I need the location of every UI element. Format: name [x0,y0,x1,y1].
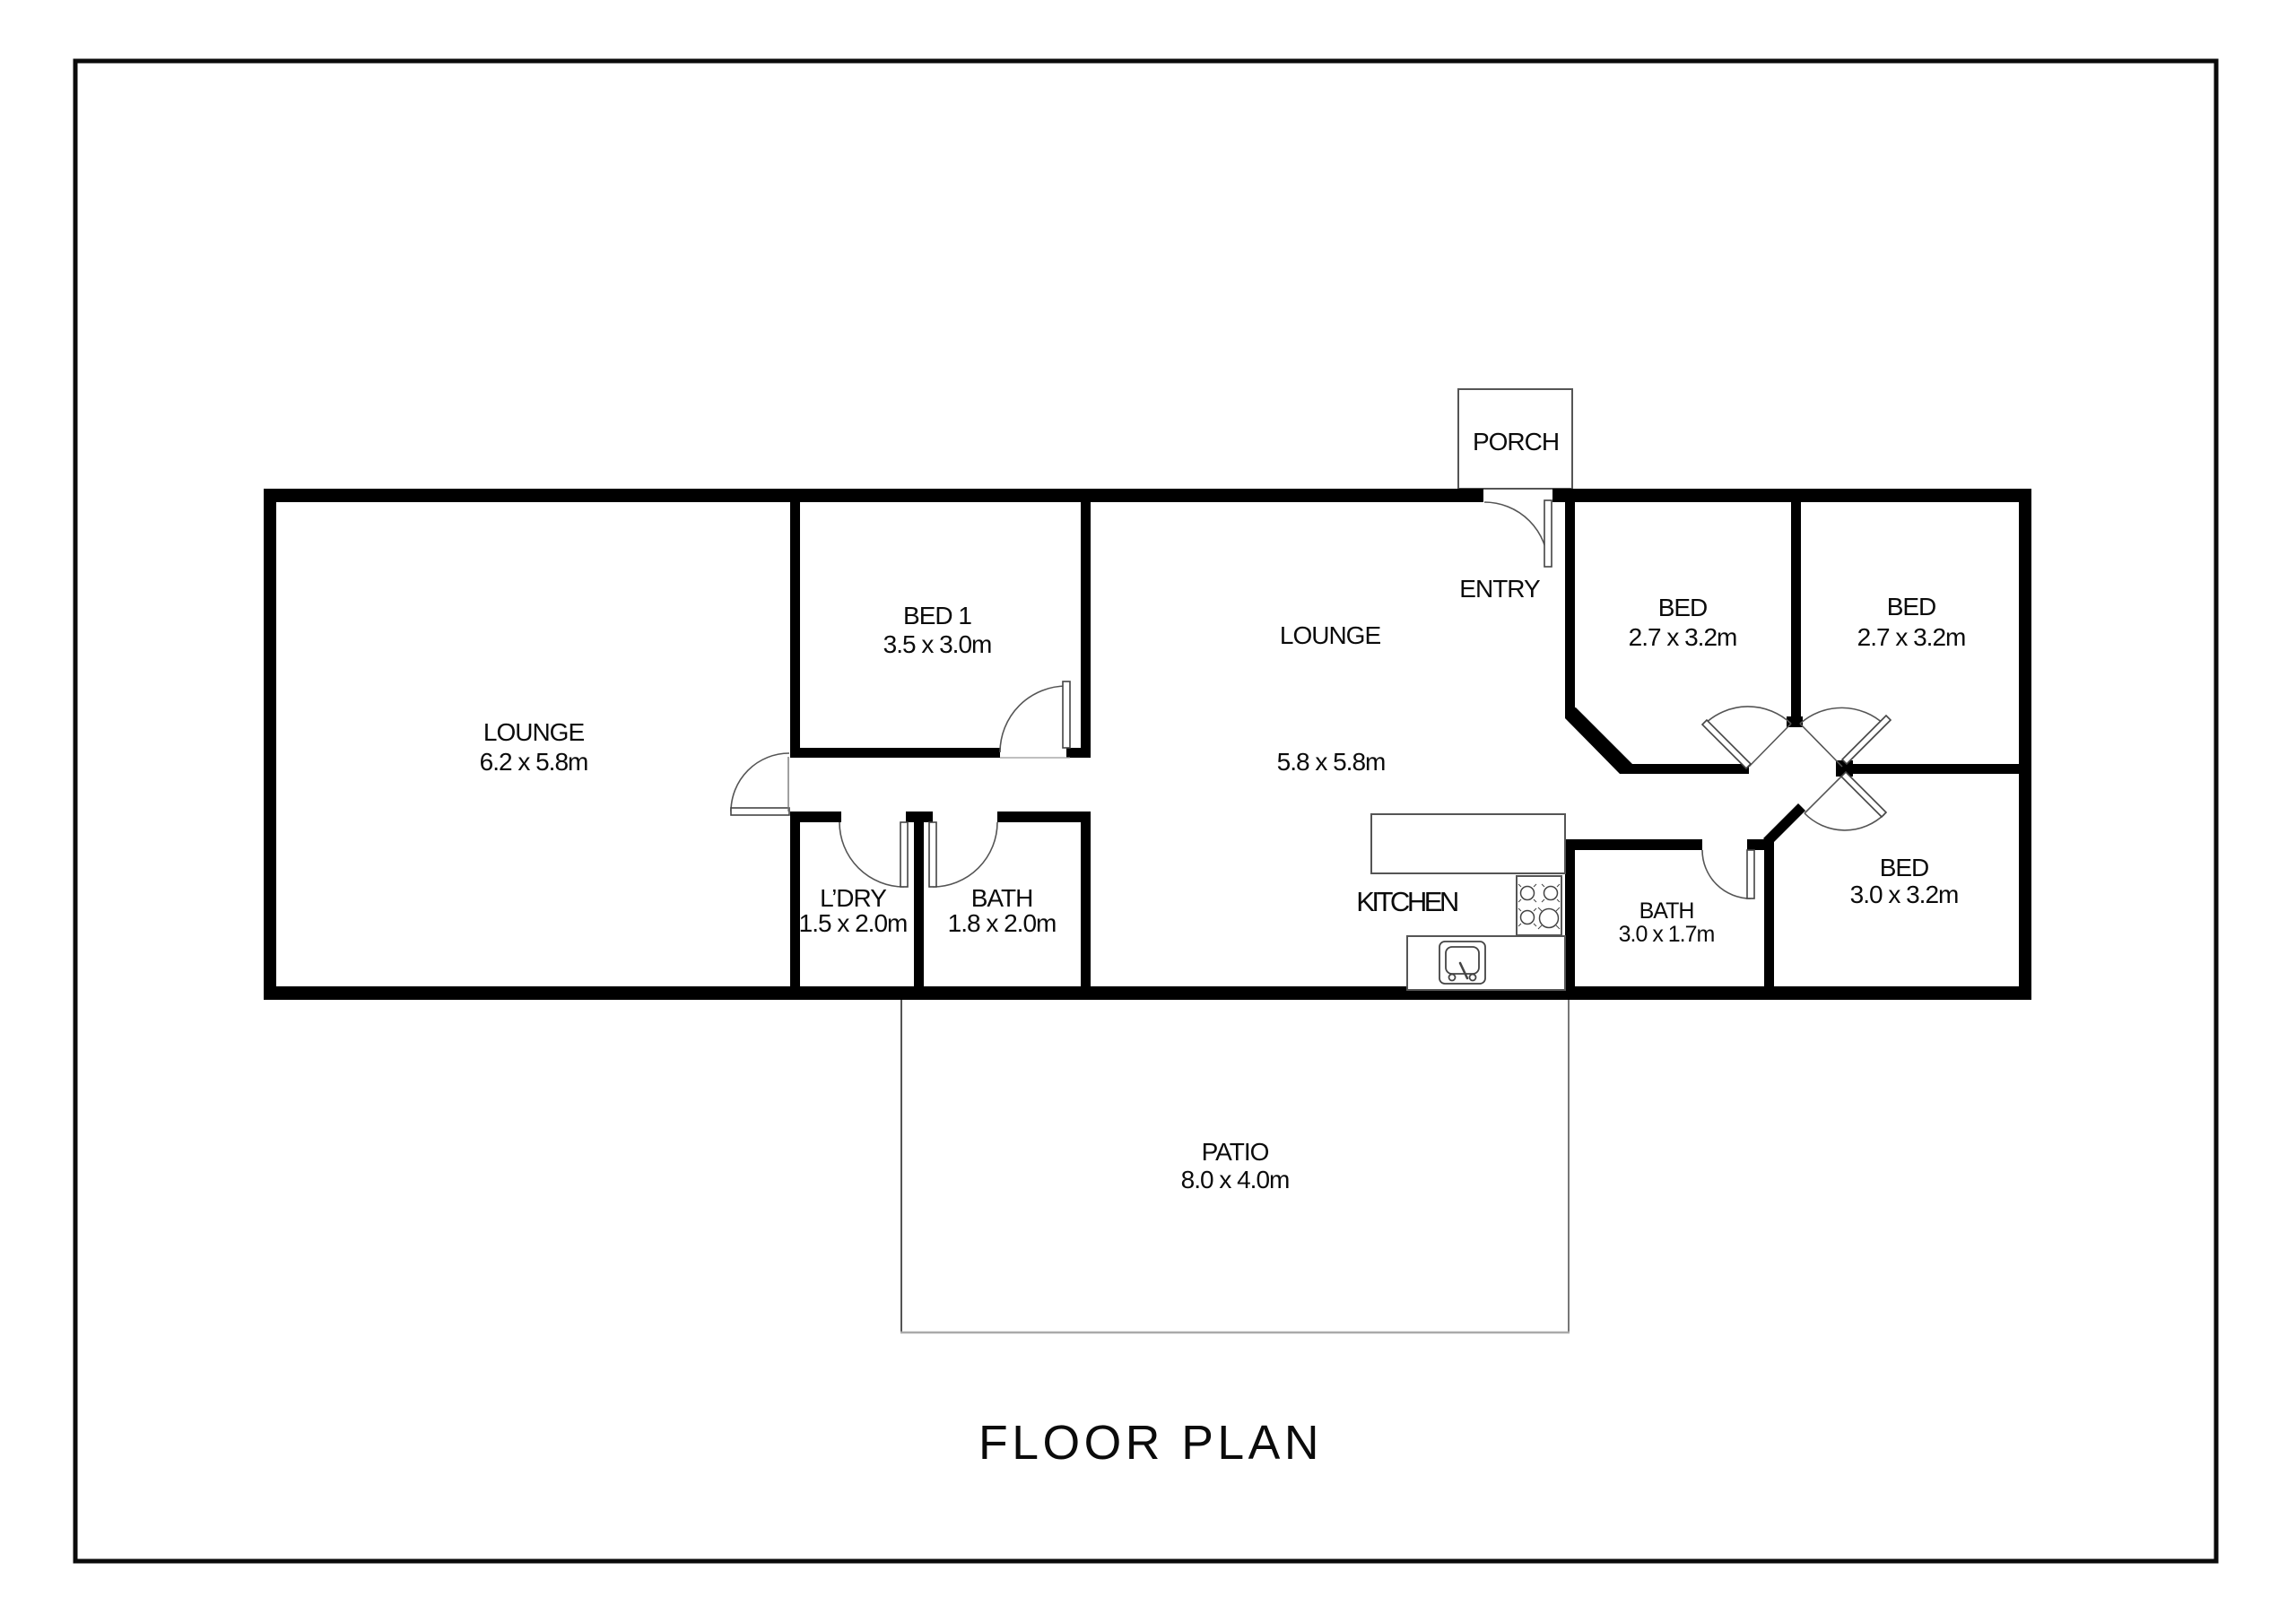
svg-text:3.0 x 1.7m: 3.0 x 1.7m [1619,922,1715,947]
svg-text:2.7 x 3.2m: 2.7 x 3.2m [1857,623,1966,651]
svg-text:3.5 x 3.0m: 3.5 x 3.0m [883,630,992,658]
svg-text:6.2 x 5.8m: 6.2 x 5.8m [480,748,588,776]
svg-text:KITCHEN: KITCHEN [1356,886,1457,917]
svg-text:3.0 x 3.2m: 3.0 x 3.2m [1850,881,1959,908]
svg-text:BED: BED [1887,593,1936,621]
svg-text:BED: BED [1880,854,1929,881]
svg-text:L’DRY: L’DRY [820,884,887,912]
svg-text:BED 1: BED 1 [903,602,971,629]
svg-text:5.8 x 5.8m: 5.8 x 5.8m [1277,748,1386,776]
svg-text:PORCH: PORCH [1473,428,1559,456]
svg-text:BED: BED [1658,594,1708,621]
svg-text:LOUNGE: LOUNGE [483,718,585,746]
svg-text:8.0 x 4.0m: 8.0 x 4.0m [1181,1166,1290,1193]
svg-text:BATH: BATH [1639,898,1694,924]
svg-text:FLOOR PLAN: FLOOR PLAN [978,1417,1323,1470]
svg-text:LOUNGE: LOUNGE [1280,621,1381,649]
svg-text:1.5 x 2.0m: 1.5 x 2.0m [799,909,908,937]
svg-text:BATH: BATH [971,884,1033,912]
svg-text:PATIO: PATIO [1202,1138,1269,1166]
svg-text:1.8 x 2.0m: 1.8 x 2.0m [948,909,1057,937]
svg-text:2.7 x 3.2m: 2.7 x 3.2m [1629,623,1737,651]
svg-text:ENTRY: ENTRY [1459,575,1541,603]
